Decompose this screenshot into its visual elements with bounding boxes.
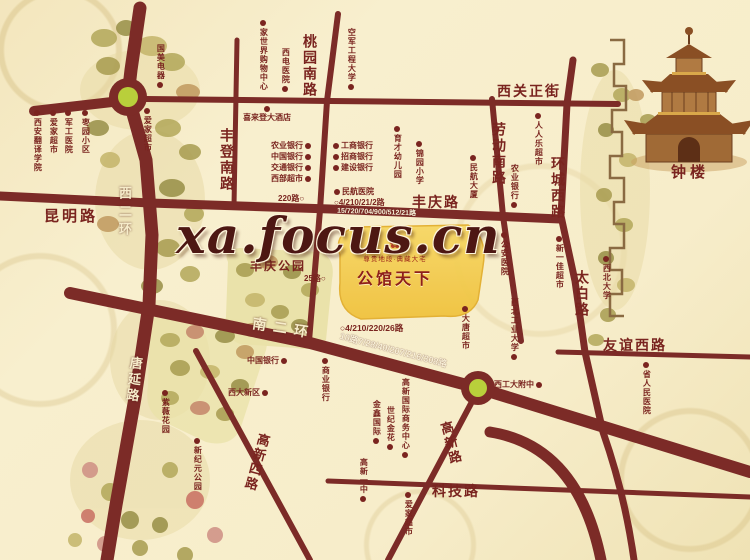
poi-dot bbox=[305, 165, 311, 171]
poi-dot bbox=[157, 82, 163, 88]
poi-dot bbox=[462, 306, 468, 312]
poi-label: 人人乐超市 bbox=[534, 113, 542, 166]
poi-dot bbox=[643, 362, 649, 368]
poi-label-text: 建设银行 bbox=[341, 164, 373, 172]
poi-label-text: 西部超市 bbox=[271, 175, 303, 183]
poi-dot bbox=[305, 176, 311, 182]
poi-label-text: 西北工业大学 bbox=[510, 298, 518, 352]
road-label: 西二环 bbox=[117, 186, 130, 240]
poi-dot bbox=[603, 256, 609, 262]
poi-label-text: 西安翻译学院 bbox=[33, 118, 41, 172]
poi-label-text: 枣园小区 bbox=[81, 118, 89, 154]
poi-dot bbox=[333, 165, 339, 171]
poi-label-text: 农业银行 bbox=[510, 164, 518, 200]
poi-dot bbox=[511, 202, 517, 208]
watermark: xa.focus.cn bbox=[176, 206, 501, 265]
poi-label: 西大新区 bbox=[228, 389, 268, 397]
poi-label-text: 爱家超市 bbox=[49, 118, 57, 154]
poi-label-text: 商业银行 bbox=[321, 366, 329, 402]
poi-label-text: 紫薇花园 bbox=[161, 398, 169, 434]
road-label: 环城西路 bbox=[550, 156, 564, 220]
poi-label-text: 西电医院 bbox=[281, 48, 289, 84]
location-map: 昆明路丰登南路桃园南路西关正街劳动南路环城西路丰庆路太白路友谊西路科技路高新路高… bbox=[0, 0, 750, 560]
poi-label-text: 军工医院 bbox=[64, 118, 72, 154]
poi-label: 家世界购物中心 bbox=[259, 20, 267, 91]
road-label: 高新四路 bbox=[241, 431, 269, 492]
poi-label-text: 西工大附中 bbox=[494, 381, 534, 389]
poi-dot bbox=[387, 444, 393, 450]
poi-label-text: 空军工程大学 bbox=[347, 28, 355, 82]
poi-label: 育才幼儿园 bbox=[393, 126, 401, 179]
poi-label: 民航医院 bbox=[334, 188, 374, 196]
poi-label: 世纪金花 bbox=[386, 406, 394, 450]
bus-route-label: 25路○ bbox=[304, 275, 326, 283]
poi-label-text: 中国银行 bbox=[271, 153, 303, 161]
poi-label-text: 大唐超市 bbox=[461, 314, 469, 350]
poi-dot bbox=[264, 106, 270, 112]
poi-label-text: 家世界购物中心 bbox=[259, 28, 267, 91]
poi-label: 交通银行 bbox=[271, 164, 311, 172]
poi-label: 高新国际商务中心 bbox=[401, 378, 409, 458]
poi-label: 农业银行 bbox=[510, 164, 518, 208]
poi-label-text: 高新国际商务中心 bbox=[401, 378, 409, 450]
poi-label-text: 金鑫国际 bbox=[372, 400, 380, 436]
poi-label-text: 新一佳超市 bbox=[555, 244, 563, 289]
road-label: 劳动南路 bbox=[491, 122, 505, 186]
poi-label-text: 交通银行 bbox=[271, 164, 303, 172]
poi-label: 爱家超市 bbox=[143, 108, 151, 152]
poi-label-text: 爱家超市 bbox=[143, 116, 151, 152]
poi-dot bbox=[402, 452, 408, 458]
poi-label: 商业银行 bbox=[321, 358, 329, 402]
poi-dot bbox=[50, 110, 56, 116]
poi-label-text: 农业银行 bbox=[271, 142, 303, 150]
road-label: 友谊西路 bbox=[603, 339, 667, 353]
bus-route-label: ○4/210/220/26路 bbox=[340, 324, 403, 333]
poi-dot bbox=[511, 354, 517, 360]
road-label: 南二环 bbox=[251, 317, 315, 341]
poi-dot bbox=[282, 86, 288, 92]
poi-label-text: 民航医院 bbox=[342, 188, 374, 196]
poi-label-text: 省人民医院 bbox=[642, 370, 650, 415]
road-label: 科技路 bbox=[432, 485, 480, 499]
road-label: 钟楼 bbox=[671, 165, 709, 180]
poi-dot bbox=[322, 358, 328, 364]
road-label: 唐延路 bbox=[124, 355, 142, 404]
poi-dot bbox=[144, 108, 150, 114]
poi-dot bbox=[333, 143, 339, 149]
poi-label-text: 新纪元公园 bbox=[193, 446, 201, 491]
poi-label: 工商银行 bbox=[333, 142, 373, 150]
poi-dot bbox=[305, 154, 311, 160]
poi-label: 省人民医院 bbox=[642, 362, 650, 415]
poi-label: 西北工业大学 bbox=[510, 298, 518, 360]
poi-label-text: 人人乐超市 bbox=[534, 121, 542, 166]
poi-dot bbox=[65, 110, 71, 116]
road-label: 太白路 bbox=[574, 270, 588, 318]
poi-dot bbox=[360, 496, 366, 502]
poi-label: 金鑫国际 bbox=[372, 400, 380, 444]
poi-label: 西北大学 bbox=[602, 256, 610, 300]
poi-dot bbox=[262, 390, 268, 396]
poi-dot bbox=[34, 110, 40, 116]
poi-label: 公安医院 bbox=[500, 232, 508, 276]
project-name: 公馆天下 bbox=[340, 265, 450, 289]
bus-route-label: 220路○ bbox=[278, 195, 304, 203]
poi-dot bbox=[194, 438, 200, 444]
poi-label-text: 工商银行 bbox=[341, 142, 373, 150]
poi-dot bbox=[470, 155, 476, 161]
poi-label-text: 民航大厦 bbox=[469, 163, 477, 199]
road-label: 桃园南路 bbox=[302, 34, 316, 98]
poi-label: 中国银行 bbox=[271, 153, 311, 161]
poi-dot bbox=[556, 236, 562, 242]
poi-label: 高新一中 bbox=[359, 458, 367, 502]
poi-dot bbox=[394, 126, 400, 132]
poi-label: 中国银行 bbox=[247, 357, 287, 365]
poi-label-text: 西大新区 bbox=[228, 389, 260, 397]
poi-label: 喜来登大酒店 bbox=[243, 106, 291, 122]
poi-label: 爱家超市 bbox=[404, 492, 412, 536]
poi-label: 空军工程大学 bbox=[347, 28, 355, 90]
poi-label: 民航大厦 bbox=[469, 155, 477, 199]
poi-label: 西电医院 bbox=[281, 48, 289, 92]
road-label: 高新路 bbox=[437, 420, 461, 467]
poi-label: 西工大附中 bbox=[494, 381, 542, 389]
road-label: 丰登南路 bbox=[219, 128, 233, 192]
poi-label-text: 国美电器 bbox=[156, 44, 164, 80]
poi-label: 招商银行 bbox=[333, 153, 373, 161]
poi-label: 新一佳超市 bbox=[555, 236, 563, 289]
poi-label: 军工医院 bbox=[64, 110, 72, 154]
poi-label: 新纪元公园 bbox=[193, 438, 201, 491]
poi-label-text: 西北大学 bbox=[602, 264, 610, 300]
road-label: 西关正街 bbox=[497, 85, 561, 99]
poi-dot bbox=[305, 143, 311, 149]
poi-dot bbox=[416, 141, 422, 147]
poi-dot bbox=[281, 358, 287, 364]
poi-label: 西安翻译学院 bbox=[33, 110, 41, 172]
poi-label: 农业银行 bbox=[271, 142, 311, 150]
poi-label-text: 喜来登大酒店 bbox=[243, 114, 291, 122]
poi-label: 爱家超市 bbox=[49, 110, 57, 154]
poi-label-text: 育才幼儿园 bbox=[393, 134, 401, 179]
poi-label-text: 世纪金花 bbox=[386, 406, 394, 442]
bus-route-label: 10路7/28/40/207/216/308路 bbox=[339, 332, 448, 369]
poi-dot bbox=[405, 492, 411, 498]
poi-dot bbox=[333, 154, 339, 160]
road-label: 昆明路 bbox=[44, 209, 98, 224]
poi-dot bbox=[82, 110, 88, 116]
poi-label-text: 中国银行 bbox=[247, 357, 279, 365]
poi-label-text: 招商银行 bbox=[341, 153, 373, 161]
poi-label: 大唐超市 bbox=[461, 306, 469, 350]
poi-dot bbox=[373, 438, 379, 444]
poi-label-text: 公安医院 bbox=[500, 240, 508, 276]
poi-label: 锦园小学 bbox=[415, 141, 423, 185]
poi-dot bbox=[501, 232, 507, 238]
poi-label-text: 爱家超市 bbox=[404, 500, 412, 536]
poi-dot bbox=[334, 189, 340, 195]
poi-label: 枣园小区 bbox=[81, 110, 89, 154]
poi-label: 建设银行 bbox=[333, 164, 373, 172]
poi-dot bbox=[260, 20, 266, 26]
poi-label: 紫薇花园 bbox=[161, 390, 169, 434]
poi-dot bbox=[536, 382, 542, 388]
poi-dot bbox=[348, 84, 354, 90]
poi-dot bbox=[162, 390, 168, 396]
poi-label-text: 锦园小学 bbox=[415, 149, 423, 185]
poi-label: 西部超市 bbox=[271, 175, 311, 183]
poi-dot bbox=[535, 113, 541, 119]
poi-label: 国美电器 bbox=[156, 44, 164, 88]
poi-label-text: 高新一中 bbox=[359, 458, 367, 494]
